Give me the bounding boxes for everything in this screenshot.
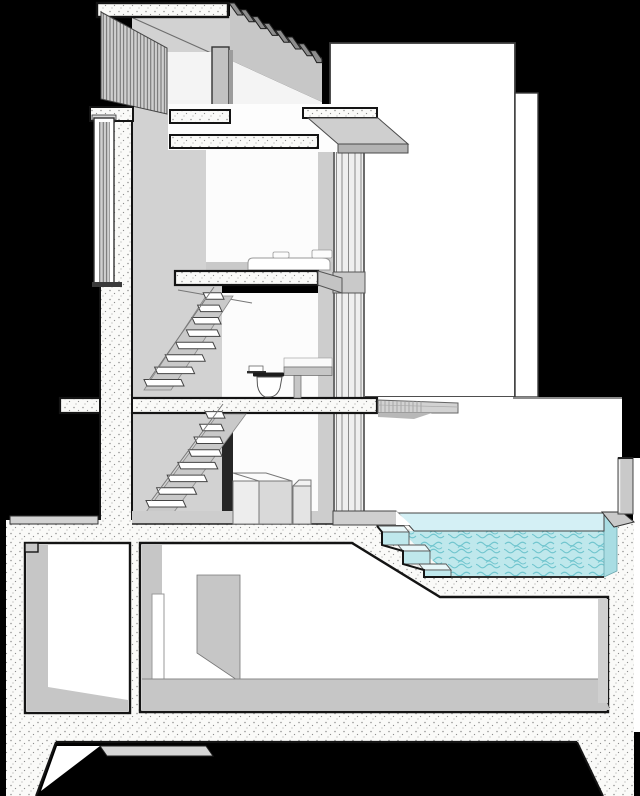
- island-side: [259, 481, 292, 524]
- vanity-leg: [294, 376, 301, 399]
- terrace-slab-right: [303, 108, 377, 118]
- basement-floor: [142, 679, 610, 710]
- glass-wall: [318, 152, 365, 513]
- bed: [248, 258, 330, 270]
- glass-wall-pier: [318, 152, 333, 513]
- section-canvas: [0, 0, 640, 796]
- ground-furniture: [233, 473, 311, 524]
- toilet-seat: [253, 373, 284, 377]
- vanity-niche: [284, 358, 332, 367]
- basement-right-wall: [598, 599, 608, 703]
- canopy-fascia: [338, 144, 408, 153]
- terrace-slab-left: [170, 110, 230, 123]
- vanity-shelf: [284, 367, 332, 376]
- pool-water-surface: [398, 513, 604, 531]
- lightwell-wall: [27, 545, 48, 711]
- island-front: [233, 481, 259, 524]
- stool-front: [293, 486, 311, 524]
- lightwell: [25, 543, 130, 713]
- roof-slab: [97, 3, 228, 17]
- footing-plinth: [100, 746, 213, 756]
- floor3-slab: [175, 271, 318, 285]
- lightwell-notch: [25, 543, 38, 552]
- screen-sill: [92, 282, 122, 287]
- left-terrace: [10, 516, 98, 524]
- bed-headboard: [312, 250, 332, 258]
- bed-cushion: [273, 252, 289, 258]
- slat-screen-lower: [99, 122, 110, 282]
- architectural-section-drawing: [0, 0, 640, 796]
- far-right-wall-strip: [633, 458, 640, 732]
- terrace-slab-low: [170, 135, 318, 148]
- neighbour-wall-strip: [515, 93, 538, 397]
